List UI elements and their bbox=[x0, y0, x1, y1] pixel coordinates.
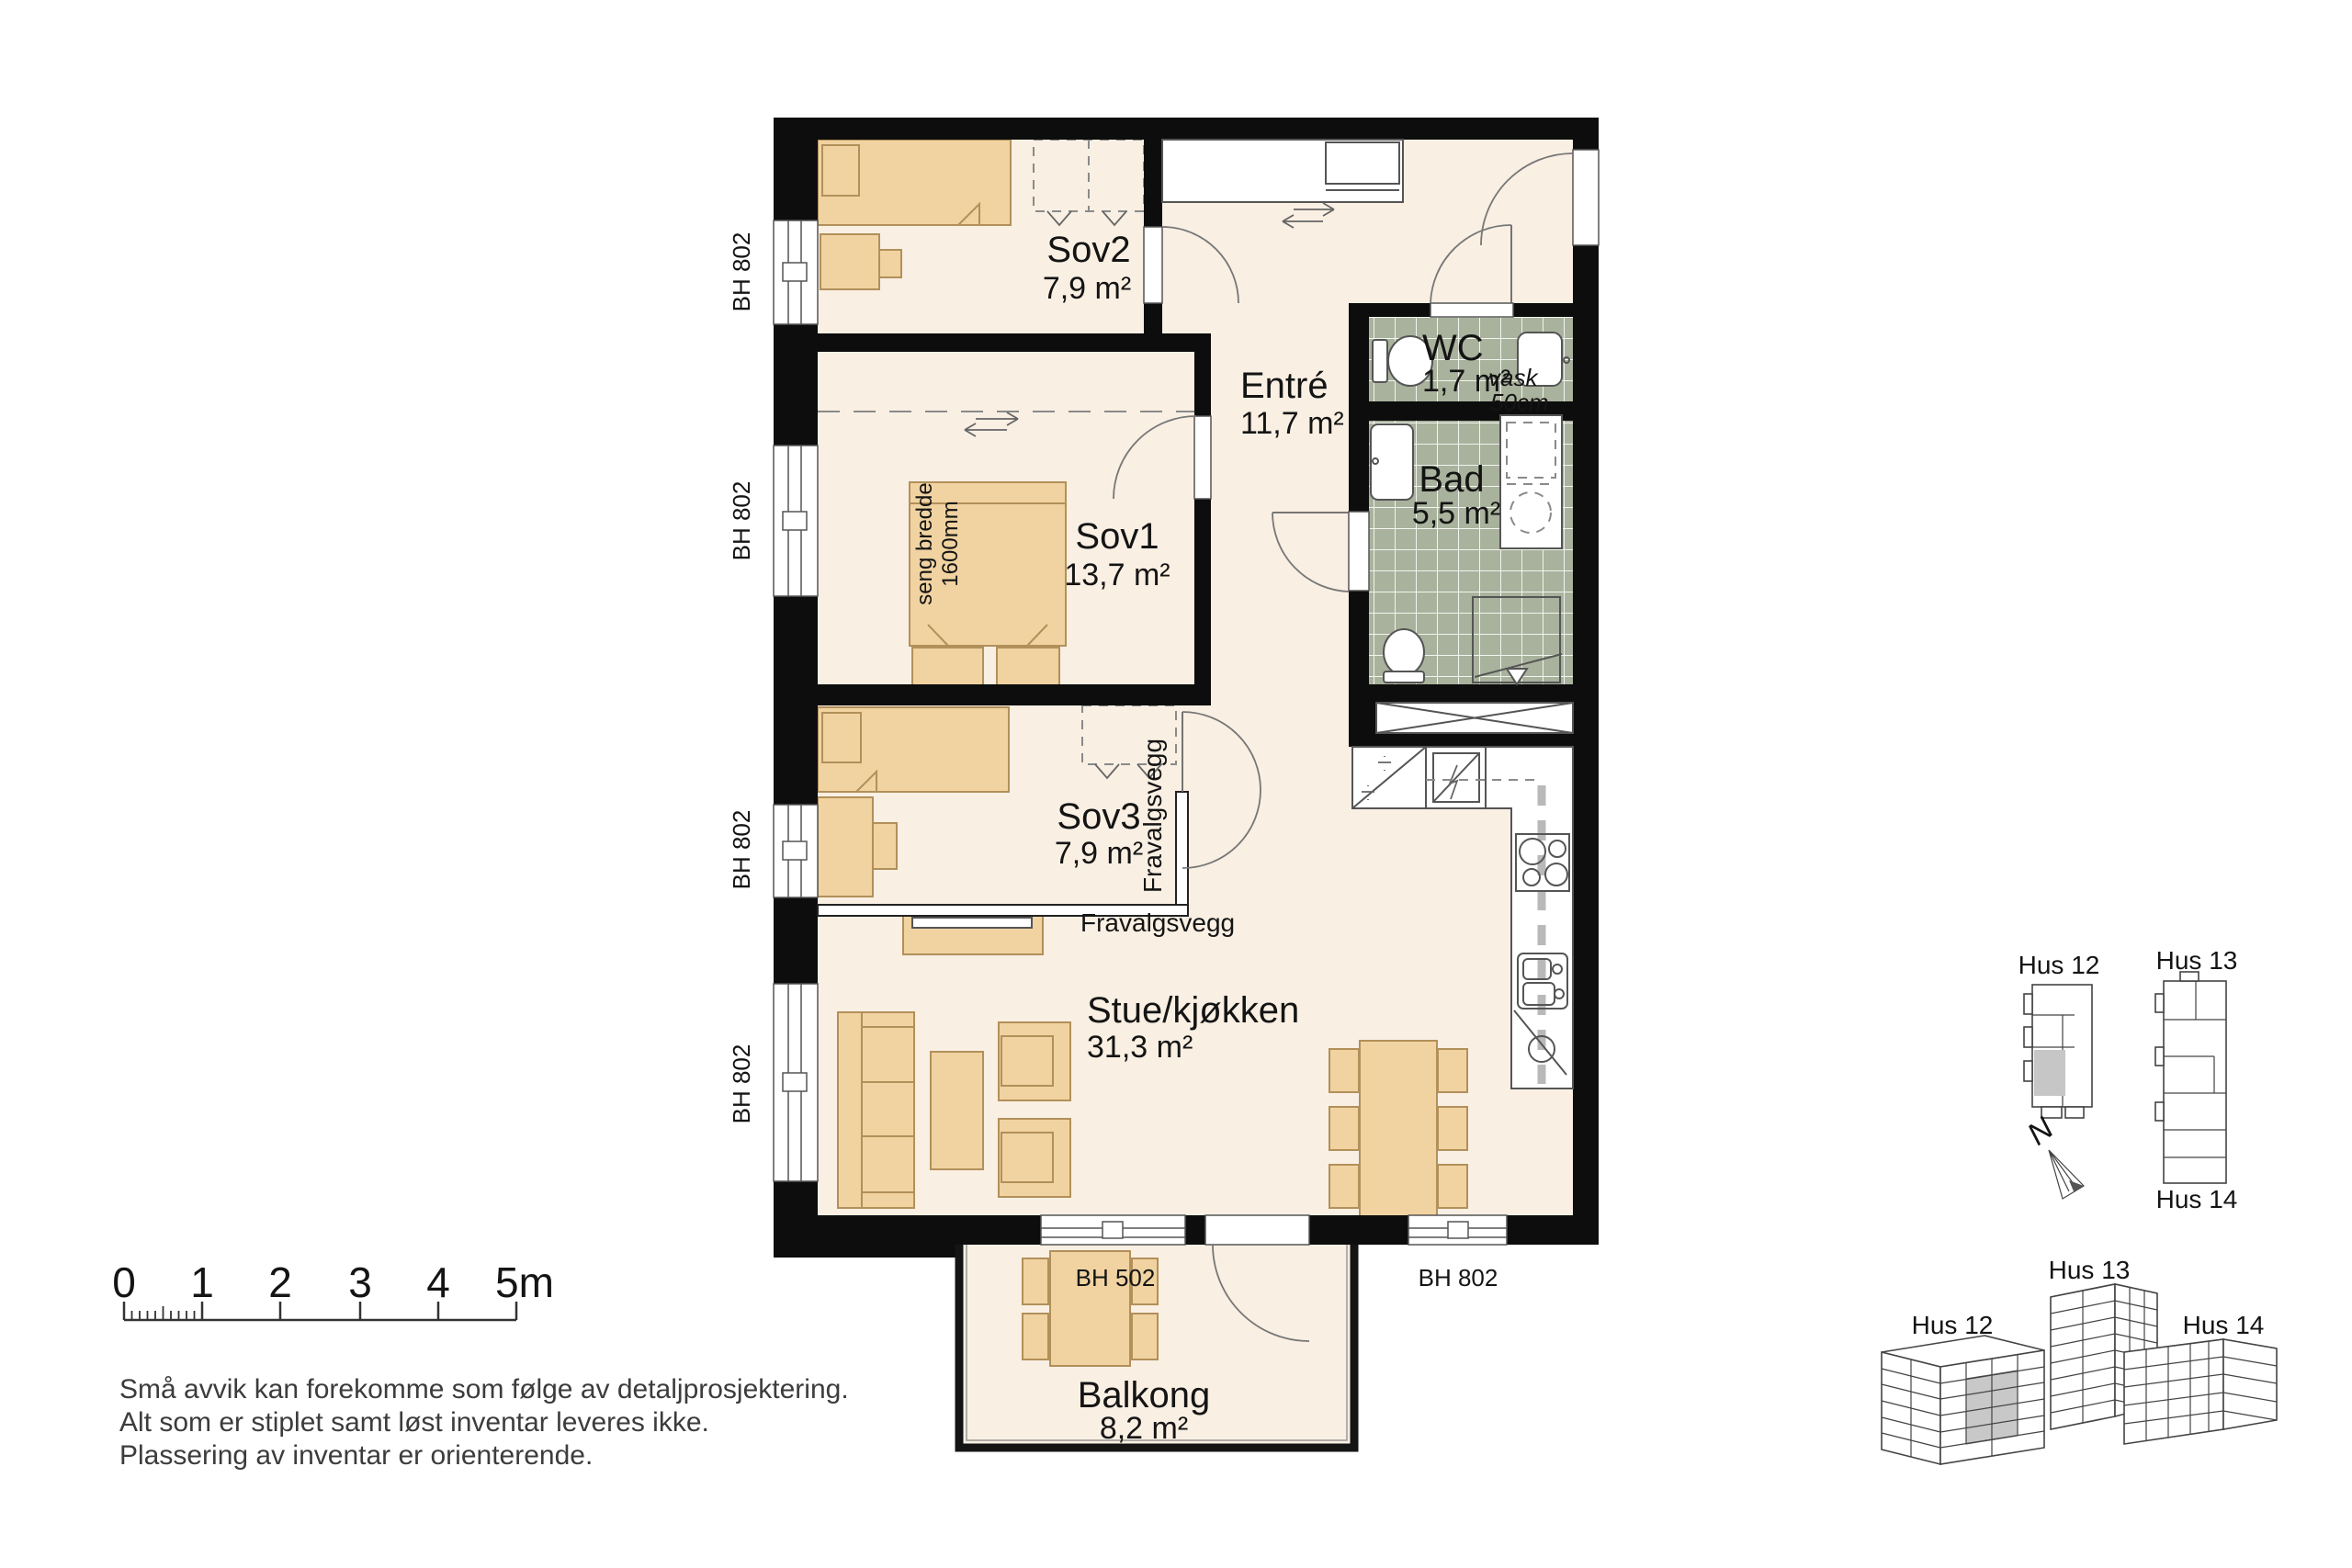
fridge-cabinet bbox=[1426, 747, 1486, 808]
fravalgsvegg-label-horizontal: Fravalgsvegg bbox=[1080, 908, 1235, 937]
room-label-sov1: Sov1 bbox=[1075, 516, 1159, 557]
closet-icon bbox=[1376, 703, 1573, 733]
wall-bottom bbox=[1507, 1215, 1599, 1245]
disclaimer-line-2: Alt som er stiplet samt løst inventar le… bbox=[119, 1407, 709, 1438]
dining-chair bbox=[1438, 1165, 1467, 1208]
wall-bad-bottom bbox=[1349, 684, 1599, 703]
room-area-bad: 5,5 m² bbox=[1412, 496, 1500, 531]
window bbox=[1041, 1215, 1185, 1245]
nightstand bbox=[820, 234, 879, 289]
nightstand bbox=[912, 648, 983, 688]
wall-left bbox=[774, 140, 818, 220]
room-label-wc: WC bbox=[1422, 328, 1484, 368]
wall-sov1-entre bbox=[1194, 352, 1211, 416]
armchair bbox=[999, 1022, 1070, 1100]
scale-bar-minor-ticks bbox=[132, 1306, 195, 1320]
scale-tick-label: 0 bbox=[112, 1258, 136, 1306]
window bbox=[774, 220, 818, 324]
wall-left bbox=[774, 897, 818, 984]
room-label-sov3: Sov3 bbox=[1057, 796, 1140, 837]
toilet-tank-icon bbox=[1384, 671, 1424, 682]
room-area-sov2: 7,9 m² bbox=[1043, 271, 1131, 306]
wall-bottom bbox=[1309, 1215, 1408, 1245]
room-label-stue: Stue/kjøkken bbox=[1087, 990, 1299, 1031]
floorplan-canvas: Sov2 7,9 m² Sov1 13,7 m² Sov3 7,9 m² Ent… bbox=[0, 0, 2352, 1568]
wall-closet-bottom bbox=[1349, 733, 1599, 747]
window-label-bh802-bottom: BH 802 bbox=[1419, 1264, 1498, 1292]
window bbox=[774, 984, 818, 1181]
scale-tick-label: 5m bbox=[495, 1258, 554, 1306]
kitchen-tall-cabinet bbox=[1352, 747, 1426, 808]
toilet-tank-icon bbox=[1373, 340, 1387, 382]
room-label-bad: Bad bbox=[1419, 459, 1484, 500]
dining-table bbox=[1360, 1041, 1437, 1216]
window-label-bh802-4: BH 802 bbox=[728, 1044, 755, 1124]
wall-top bbox=[774, 118, 1599, 140]
site-label-hus14: Hus 14 bbox=[2156, 1185, 2238, 1213]
scale-bar: 0 1 2 3 4 5m bbox=[112, 1258, 554, 1320]
disclaimer: Små avvik kan forekomme som følge av det… bbox=[119, 1374, 849, 1471]
balcony-chair bbox=[1023, 1314, 1048, 1359]
wall-bad-left bbox=[1349, 591, 1369, 684]
desk bbox=[818, 797, 873, 897]
window-label-bh502: BH 502 bbox=[1076, 1264, 1156, 1292]
wall-closet-left bbox=[1349, 703, 1376, 733]
room-label-balkong: Balkong bbox=[1078, 1375, 1211, 1416]
wall-sov1-sov3 bbox=[774, 684, 1211, 705]
wall-sov2-sov1 bbox=[818, 333, 1211, 352]
wall-left bbox=[774, 1181, 818, 1215]
toilet-icon bbox=[1384, 629, 1424, 675]
site-label-hus13: Hus 13 bbox=[2156, 946, 2238, 975]
sofa bbox=[838, 1012, 914, 1208]
site-plan: Hus 12 Hus 13 Hus 14 N bbox=[2018, 946, 2238, 1213]
room-label-sov2: Sov2 bbox=[1046, 230, 1130, 270]
iso-hus14 bbox=[2124, 1339, 2277, 1444]
iso-label-hus14: Hus 14 bbox=[2183, 1311, 2265, 1339]
wall-bad-left bbox=[1349, 421, 1369, 512]
window-label-bh802-2: BH 802 bbox=[728, 481, 755, 561]
wall-wc-left bbox=[1349, 303, 1369, 401]
iso-view: Hus 13 Hus 12 Hus 14 bbox=[1882, 1256, 2277, 1464]
nightstand bbox=[997, 648, 1059, 688]
window-label-bh802-3: BH 802 bbox=[728, 810, 755, 890]
iso-label-hus12: Hus 12 bbox=[1912, 1311, 1994, 1339]
iso-hus12 bbox=[1882, 1336, 2044, 1464]
disclaimer-line-3: Plassering av inventar er orienterende. bbox=[119, 1440, 593, 1471]
washer-column-icon bbox=[1500, 415, 1562, 548]
fravalgsvegg-label-vertical: Fravalgsvegg bbox=[1138, 739, 1167, 893]
wall-sov1-entre bbox=[1194, 499, 1211, 705]
bed-width-value: 1600mm bbox=[938, 501, 963, 586]
wall-wc-top bbox=[1513, 303, 1573, 317]
wc-sink-size: 50cm bbox=[1490, 389, 1549, 416]
wall-bottom bbox=[774, 1215, 1041, 1245]
scale-tick-label: 2 bbox=[268, 1258, 292, 1306]
coffee-table bbox=[931, 1052, 983, 1169]
window bbox=[774, 805, 818, 897]
window bbox=[1408, 1215, 1507, 1245]
desk-chair bbox=[873, 823, 897, 869]
dining-chair bbox=[1438, 1049, 1467, 1092]
scale-tick-label: 1 bbox=[190, 1258, 214, 1306]
room-area-stue: 31,3 m² bbox=[1087, 1030, 1193, 1065]
room-area-entre: 11,7 m² bbox=[1240, 406, 1344, 441]
dining-chair bbox=[1329, 1049, 1359, 1092]
room-area-balkong: 8,2 m² bbox=[1100, 1411, 1188, 1446]
current-unit-highlight bbox=[2034, 1050, 2065, 1096]
bed-width-label: seng bredde bbox=[912, 482, 937, 604]
room-label-entre: Entré bbox=[1240, 366, 1329, 406]
window-label-bh802-1: BH 802 bbox=[728, 232, 755, 312]
disclaimer-line-1: Små avvik kan forekomme som følge av det… bbox=[119, 1374, 849, 1404]
dining-chair bbox=[1329, 1165, 1359, 1208]
balcony-chair bbox=[1023, 1258, 1048, 1304]
wall-right bbox=[1573, 140, 1599, 150]
scale-tick-label: 3 bbox=[348, 1258, 372, 1306]
iso-label-hus13: Hus 13 bbox=[2049, 1256, 2131, 1284]
armchair bbox=[999, 1119, 1070, 1197]
scale-bar-major-ticks bbox=[124, 1302, 516, 1320]
north-arrow-icon: N bbox=[2021, 1111, 2084, 1199]
wall-left bbox=[774, 324, 818, 446]
pillow bbox=[822, 713, 861, 762]
site-hus13-outline bbox=[2155, 972, 2226, 1183]
wc-sink-label: vask bbox=[1488, 364, 1539, 391]
wall-stub-bottom-left bbox=[774, 1245, 962, 1258]
window bbox=[774, 446, 818, 596]
pillow bbox=[822, 145, 859, 196]
balcony-chair bbox=[1132, 1314, 1158, 1359]
nightstand-knob bbox=[879, 250, 901, 277]
dining-chair bbox=[1438, 1107, 1467, 1150]
fravalgsvegg-vertical bbox=[1176, 792, 1188, 905]
wall-sov2-entre bbox=[1144, 140, 1162, 227]
tv-icon bbox=[912, 918, 1032, 928]
room-area-sov3: 7,9 m² bbox=[1055, 836, 1143, 871]
site-hus12-outline bbox=[2024, 985, 2092, 1118]
scale-tick-label: 4 bbox=[426, 1258, 450, 1306]
site-label-hus12: Hus 12 bbox=[2018, 951, 2100, 979]
wall-wc-top bbox=[1349, 303, 1430, 317]
wall-bottom bbox=[1185, 1215, 1205, 1245]
room-area-sov1: 13,7 m² bbox=[1064, 558, 1170, 592]
dining-chair bbox=[1329, 1107, 1359, 1150]
